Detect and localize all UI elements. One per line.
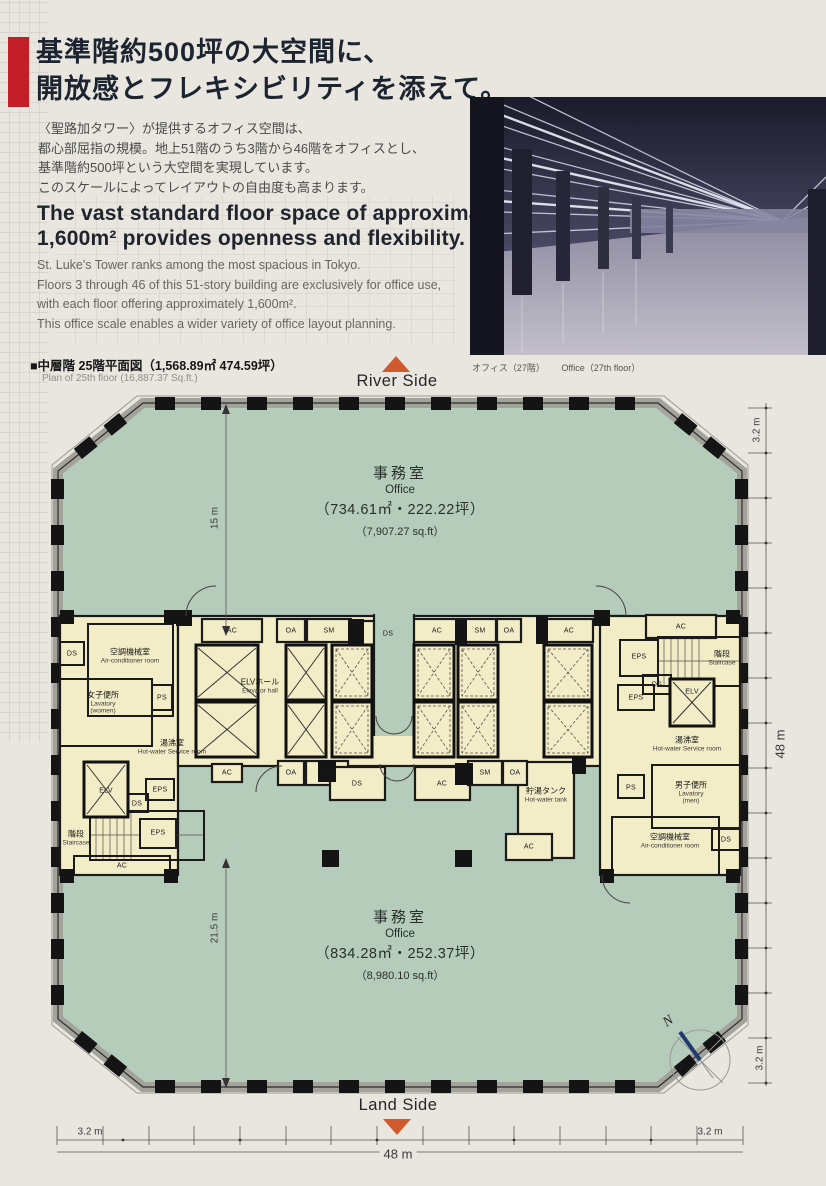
plan-label-ds: DS — [652, 682, 662, 689]
room-label-lavatory-men: 男子便所Lavatory(men) — [675, 780, 707, 805]
plan-label-ac: AC — [676, 624, 686, 631]
dim-office-lower: 21.5 m — [210, 913, 221, 944]
plan-label-oa: OA — [504, 628, 515, 635]
plan-label-ds: DS — [67, 651, 77, 658]
dim-right-mid: 48 m — [773, 730, 788, 759]
plan-label-ac: AC — [524, 844, 534, 851]
plan-label-eps: EPS — [151, 830, 166, 837]
plan-label-sm: SM — [321, 770, 332, 777]
room-label-staircase-left: 階段Staircase — [62, 829, 89, 846]
room-label-elevator-hall: ELVホールElevator hall — [241, 677, 280, 694]
plan-label-ac: AC — [227, 628, 237, 635]
plan-label-eps: EPS — [632, 654, 647, 661]
plan-label-ds: DS — [352, 781, 362, 788]
dim-office-upper: 15 m — [210, 507, 221, 529]
dim-bottom-left: 3.2 m — [77, 1127, 102, 1138]
plan-label-ac: AC — [564, 628, 574, 635]
dim-bottom-right: 3.2 m — [697, 1127, 722, 1138]
plan-label-ds: DS — [132, 801, 142, 808]
office-upper-label: 事務室 Office （734.61㎡・222.22坪） （7,907.27 s… — [315, 462, 485, 539]
room-label-ac-room-left: 空調機械室Air-conditioner room — [101, 647, 160, 664]
plan-label-oa: OA — [510, 770, 521, 777]
plan-label-sm: SM — [323, 628, 334, 635]
dim-right-bottom: 3.2 m — [755, 1045, 766, 1070]
room-label-hot-water-right: 湯沸室Hot-water Service room — [653, 735, 721, 752]
floor-plan-drawing — [0, 0, 826, 1186]
plan-label-oa: OA — [286, 770, 297, 777]
plan-label-ac: AC — [222, 770, 232, 777]
plan-label-sm: SM — [479, 770, 490, 777]
dim-right-top: 3.2 m — [752, 417, 763, 442]
room-label-ac-room-right: 空調機械室Air-conditioner room — [641, 832, 700, 849]
plan-label-ds: DS — [383, 631, 393, 638]
plan-label-ds: DS — [721, 837, 731, 844]
plan-label-ac: AC — [432, 628, 442, 635]
plan-label-ac: AC — [437, 781, 447, 788]
office-lower-label: 事務室 Office （834.28㎡・252.37坪） （8,980.10 s… — [315, 906, 485, 983]
plan-label-ps: PS — [626, 785, 636, 792]
brochure-page: 基準階約500坪の大空間に、 開放感とフレキシビリティを添えて。 〈聖路加タワー… — [0, 0, 826, 1186]
dim-bottom-mid: 48 m — [380, 1147, 417, 1162]
plan-label-oa: OA — [286, 628, 297, 635]
plan-label-eps: EPS — [153, 787, 168, 794]
plan-label-elv: ELV — [99, 788, 113, 795]
room-label-staircase-right: 階段Staircase — [708, 649, 735, 666]
plan-label-ps: PS — [157, 695, 167, 702]
plan-label-elv: ELV — [685, 689, 699, 696]
plan-label-sm: SM — [474, 628, 485, 635]
room-label-hot-water-tank: 貯湯タンクHot-water tank — [525, 786, 567, 803]
room-label-hot-water-left: 湯沸室Hot-water Service room — [138, 738, 206, 755]
plan-label-eps: EPS — [629, 695, 644, 702]
plan-label-ac: AC — [117, 863, 127, 870]
room-label-lavatory-women: 女子便所Lavatory(women) — [87, 690, 119, 715]
